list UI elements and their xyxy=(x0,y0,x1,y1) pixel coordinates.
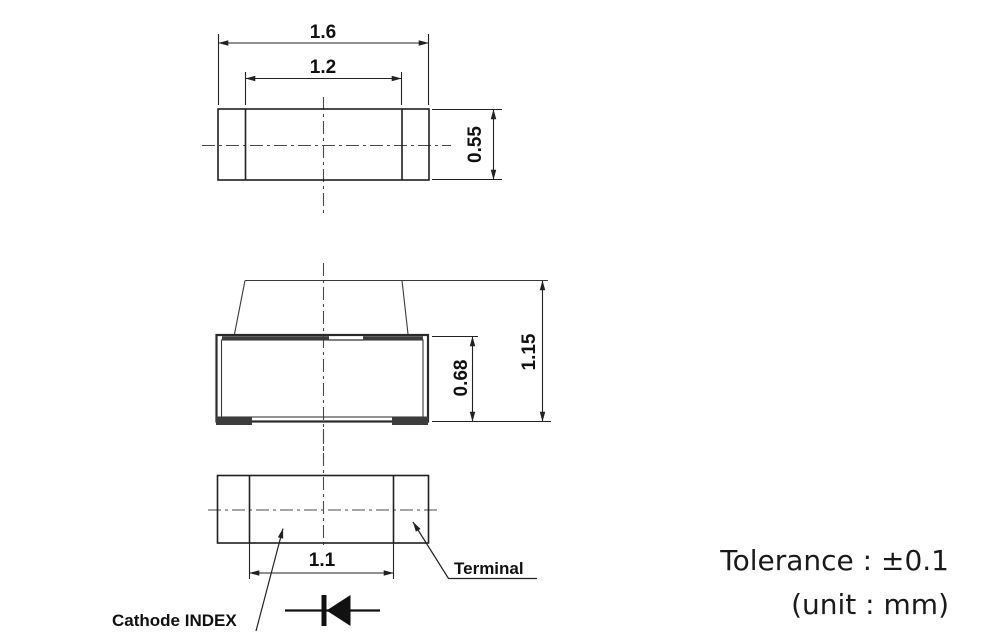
dim-label-terminal-span: 1.1 xyxy=(309,550,336,571)
terminal-foot-right xyxy=(392,417,428,426)
dim-label-body-height: 0.68 xyxy=(451,360,472,397)
drawing-canvas: 1.6 1.2 0.55 0.68 1.15 xyxy=(0,0,981,640)
lens-left-slant xyxy=(235,281,246,335)
unit-note: (unit : mm) xyxy=(791,588,949,621)
package-dimension-drawing: 1.6 1.2 0.55 0.68 1.15 xyxy=(0,0,981,640)
body-outline xyxy=(217,335,429,422)
diode-cathode-bar xyxy=(322,595,327,626)
cathode-index-label: Cathode INDEX xyxy=(112,611,237,630)
diode-symbol xyxy=(285,595,380,626)
bottom-view: 1.1 Terminal Cathode INDEX xyxy=(112,429,537,631)
lens-right-slant xyxy=(402,281,408,335)
dim-label-depth: 0.55 xyxy=(465,126,486,163)
top-view: 1.6 1.2 0.55 xyxy=(202,22,502,215)
body-inner-wall xyxy=(222,340,424,417)
side-view: 0.68 1.15 xyxy=(216,263,551,458)
dim-label-overall-height: 1.15 xyxy=(519,333,540,370)
dim-label-overall-width: 1.6 xyxy=(310,22,336,43)
dim-label-resin-width: 1.2 xyxy=(310,57,336,78)
cathode-index-leader-line xyxy=(256,529,283,632)
terminal-label: Terminal xyxy=(454,559,524,578)
notes: Tolerance : ±0.1 (unit : mm) xyxy=(719,544,949,621)
diode-triangle xyxy=(327,595,351,626)
terminal-foot-left xyxy=(216,417,252,426)
tolerance-note: Tolerance : ±0.1 xyxy=(719,544,949,577)
